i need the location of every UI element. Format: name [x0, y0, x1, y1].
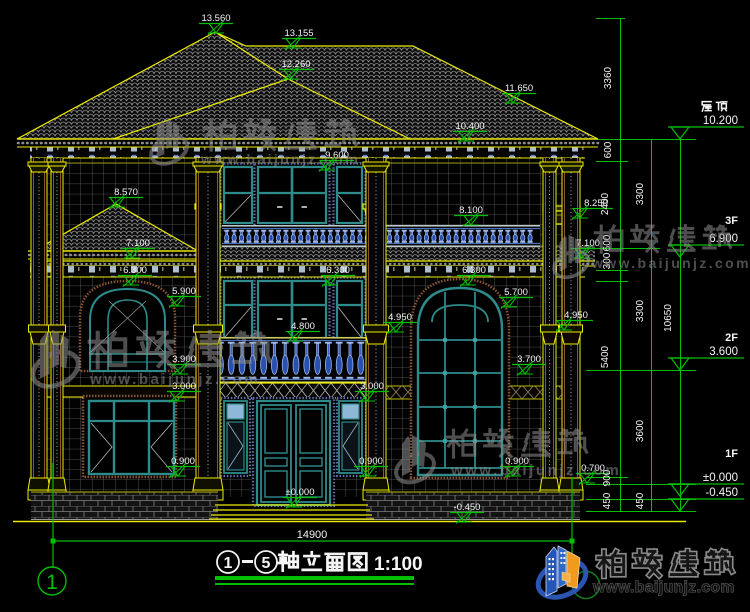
svg-text:www.baijunjz.com: www.baijunjz.com	[200, 151, 360, 167]
svg-text:6.300: 6.300	[123, 265, 147, 276]
svg-text:2400: 2400	[600, 192, 611, 215]
svg-text:www.baijunjz.com: www.baijunjz.com	[592, 579, 735, 596]
svg-text:6.300: 6.300	[326, 265, 350, 276]
svg-text:4.950: 4.950	[388, 312, 412, 323]
svg-text:2F: 2F	[725, 332, 738, 344]
svg-text:450: 450	[635, 492, 646, 509]
svg-text:1F: 1F	[725, 448, 738, 460]
svg-text:4.950: 4.950	[564, 310, 588, 321]
svg-text:600: 600	[603, 141, 614, 158]
svg-text:±0.000: ±0.000	[703, 472, 738, 484]
svg-text:450: 450	[602, 492, 613, 509]
svg-text:3360: 3360	[603, 66, 614, 89]
svg-text:10650: 10650	[663, 304, 674, 332]
svg-text:3.700: 3.700	[517, 354, 541, 365]
svg-text:1:100: 1:100	[374, 554, 423, 575]
svg-text:5: 5	[262, 555, 271, 572]
svg-text:8.570: 8.570	[114, 187, 138, 198]
svg-text:1: 1	[224, 555, 233, 572]
svg-text:-0.450: -0.450	[705, 487, 738, 499]
svg-text:5400: 5400	[600, 345, 611, 368]
svg-text:www.baijunjz.com: www.baijunjz.com	[591, 255, 750, 271]
svg-text:10.200: 10.200	[703, 115, 738, 127]
svg-text:3.600: 3.600	[709, 346, 738, 358]
svg-text:3600: 3600	[635, 419, 646, 442]
svg-text:12.260: 12.260	[281, 59, 310, 70]
svg-text:0.900: 0.900	[171, 456, 195, 467]
svg-text:4.800: 4.800	[291, 321, 315, 332]
svg-text:10.400: 10.400	[455, 121, 484, 132]
svg-text:-0.450: -0.450	[454, 502, 481, 513]
svg-text:3F: 3F	[725, 215, 738, 227]
svg-text:5.900: 5.900	[172, 286, 196, 297]
svg-text:3.000: 3.000	[360, 381, 384, 392]
svg-text:14900: 14900	[297, 529, 328, 541]
svg-text:0.900: 0.900	[359, 456, 383, 467]
svg-text:3300: 3300	[635, 182, 646, 205]
svg-text:1: 1	[46, 571, 58, 594]
svg-text:3300: 3300	[635, 299, 646, 322]
svg-text:13.560: 13.560	[201, 13, 230, 24]
svg-text:www.baijunjz.com: www.baijunjz.com	[89, 371, 260, 388]
svg-text:5.700: 5.700	[504, 287, 528, 298]
svg-text:8.100: 8.100	[459, 205, 483, 216]
svg-text:www.baijunjz.com: www.baijunjz.com	[450, 462, 621, 479]
